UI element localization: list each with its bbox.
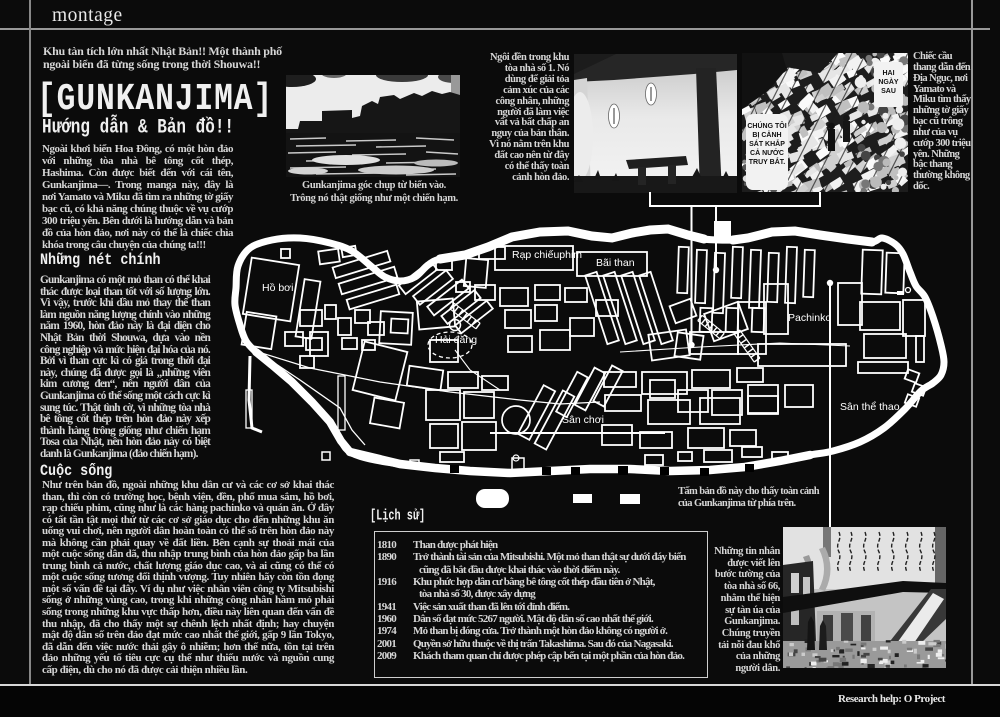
svg-text:Hải đăng: Hải đăng <box>435 334 477 346</box>
svg-text:Bãi than: Bãi than <box>596 257 635 269</box>
svg-text:Sân thể thao: Sân thể thao <box>840 401 900 413</box>
svg-text:Pachinko: Pachinko <box>788 312 831 324</box>
svg-text:Hồ bơi: Hồ bơi <box>262 282 293 294</box>
svg-text:Sân chơi: Sân chơi <box>562 414 604 426</box>
svg-text:Rạp chiếuphim: Rạp chiếuphim <box>512 249 582 261</box>
